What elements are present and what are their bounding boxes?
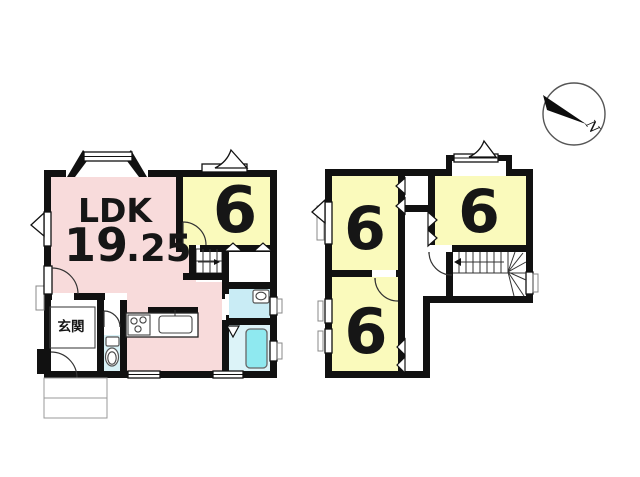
stair-window-outer — [533, 274, 538, 292]
ldk-area-major: 19 — [64, 218, 128, 272]
bath-window — [270, 341, 277, 361]
bedroom-6-label: 6 — [213, 174, 258, 248]
washroom-sliding-door — [222, 294, 229, 320]
room-a-window — [325, 202, 332, 244]
washbasin — [253, 290, 269, 303]
compass-rose: N — [543, 83, 605, 145]
stairs-2f — [453, 252, 526, 296]
stair-window — [526, 272, 533, 294]
room-c-window-2 — [325, 329, 332, 353]
room-b-label: 6 — [458, 177, 500, 247]
porch-steps — [44, 378, 107, 418]
shutter-box — [36, 286, 44, 310]
room-c-window-1 — [325, 299, 332, 323]
bay-window — [66, 150, 148, 177]
room-c-window-1-outer — [318, 301, 323, 321]
compass-circle — [543, 83, 605, 145]
bath-window-outer — [277, 343, 282, 359]
floor-plan-document: N — [0, 0, 640, 477]
room-a-label: 6 — [344, 194, 386, 264]
genkan-label: 玄関 — [58, 318, 85, 334]
kitchen-counter — [126, 310, 198, 337]
casement-window-icon — [31, 213, 44, 236]
first-floor-plan: LDK 19 .25 6 玄関 — [31, 150, 282, 418]
casement-window-icon — [215, 150, 247, 168]
toilet — [106, 337, 120, 366]
casement-window-icon — [469, 141, 496, 157]
stair-arrow-icon — [454, 258, 461, 266]
room-c-label: 6 — [344, 295, 387, 368]
bathtub — [246, 329, 267, 368]
washroom-window — [270, 297, 277, 315]
casement-window-icon — [312, 200, 325, 223]
washroom-window-outer — [277, 299, 282, 313]
second-floor-plan: 6 6 6 — [312, 141, 538, 378]
ldk-side-window — [44, 212, 51, 246]
ldk-area-minor: .25 — [126, 227, 192, 270]
room-c-window-2-outer — [318, 331, 323, 351]
closet-window — [452, 141, 506, 176]
floor-plan-svg: N — [0, 0, 640, 477]
